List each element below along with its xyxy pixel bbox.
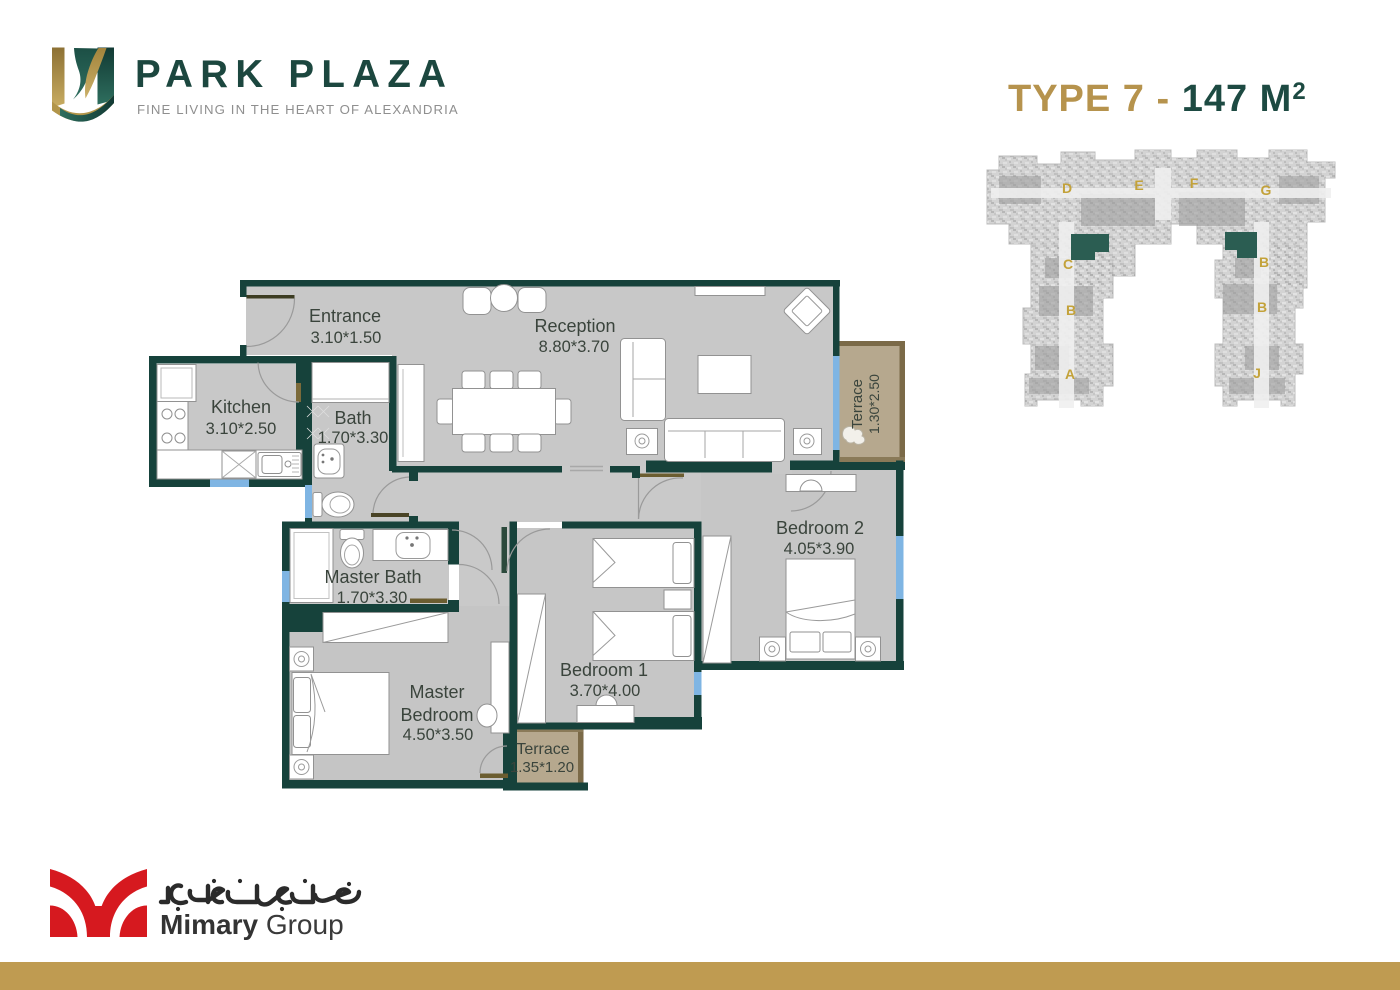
svg-text:Bath: Bath — [334, 408, 371, 428]
svg-text:Kitchen: Kitchen — [211, 397, 271, 417]
svg-text:1.70*3.30: 1.70*3.30 — [337, 589, 408, 607]
svg-text:FINE LIVING IN THE HEART OF AL: FINE LIVING IN THE HEART OF ALEXANDRIA — [137, 102, 459, 117]
svg-text:B: B — [1066, 302, 1076, 318]
svg-text:Mimary Group: Mimary Group — [160, 909, 344, 940]
svg-text:3.70*4.00: 3.70*4.00 — [570, 682, 641, 700]
svg-text:A: A — [1065, 366, 1075, 382]
svg-text:TYPE 7 - 147 M2: TYPE 7 - 147 M2 — [1008, 78, 1307, 120]
svg-text:D: D — [1062, 180, 1072, 196]
svg-text:F: F — [1190, 175, 1199, 191]
svg-text:B: B — [1259, 254, 1269, 270]
svg-text:Master Bath: Master Bath — [324, 567, 421, 587]
svg-text:C: C — [1063, 256, 1073, 272]
svg-text:Entrance: Entrance — [309, 306, 381, 326]
svg-text:3.10*2.50: 3.10*2.50 — [206, 420, 277, 438]
svg-text:8.80*3.70: 8.80*3.70 — [539, 338, 610, 356]
svg-text:1.30*2.50: 1.30*2.50 — [866, 374, 882, 434]
svg-text:Master: Master — [409, 682, 464, 702]
svg-text:J: J — [1253, 365, 1261, 381]
svg-text:Bedroom 1: Bedroom 1 — [560, 660, 648, 680]
svg-text:1.35*1.20: 1.35*1.20 — [510, 759, 574, 776]
svg-text:Bedroom 2: Bedroom 2 — [776, 518, 864, 538]
svg-text:Terrace: Terrace — [516, 741, 569, 758]
svg-text:Terrace: Terrace — [849, 379, 866, 429]
svg-text:PARK PLAZA: PARK PLAZA — [135, 53, 453, 96]
svg-text:Reception: Reception — [534, 316, 615, 336]
svg-text:G: G — [1261, 182, 1272, 198]
svg-text:E: E — [1134, 177, 1143, 193]
svg-text:Bedroom: Bedroom — [400, 705, 473, 725]
svg-text:3.10*1.50: 3.10*1.50 — [311, 329, 382, 347]
svg-text:4.50*3.50: 4.50*3.50 — [403, 726, 474, 744]
svg-text:1.70*3.30: 1.70*3.30 — [318, 429, 389, 447]
svg-text:B: B — [1257, 299, 1267, 315]
svg-text:4.05*3.90: 4.05*3.90 — [784, 540, 855, 558]
